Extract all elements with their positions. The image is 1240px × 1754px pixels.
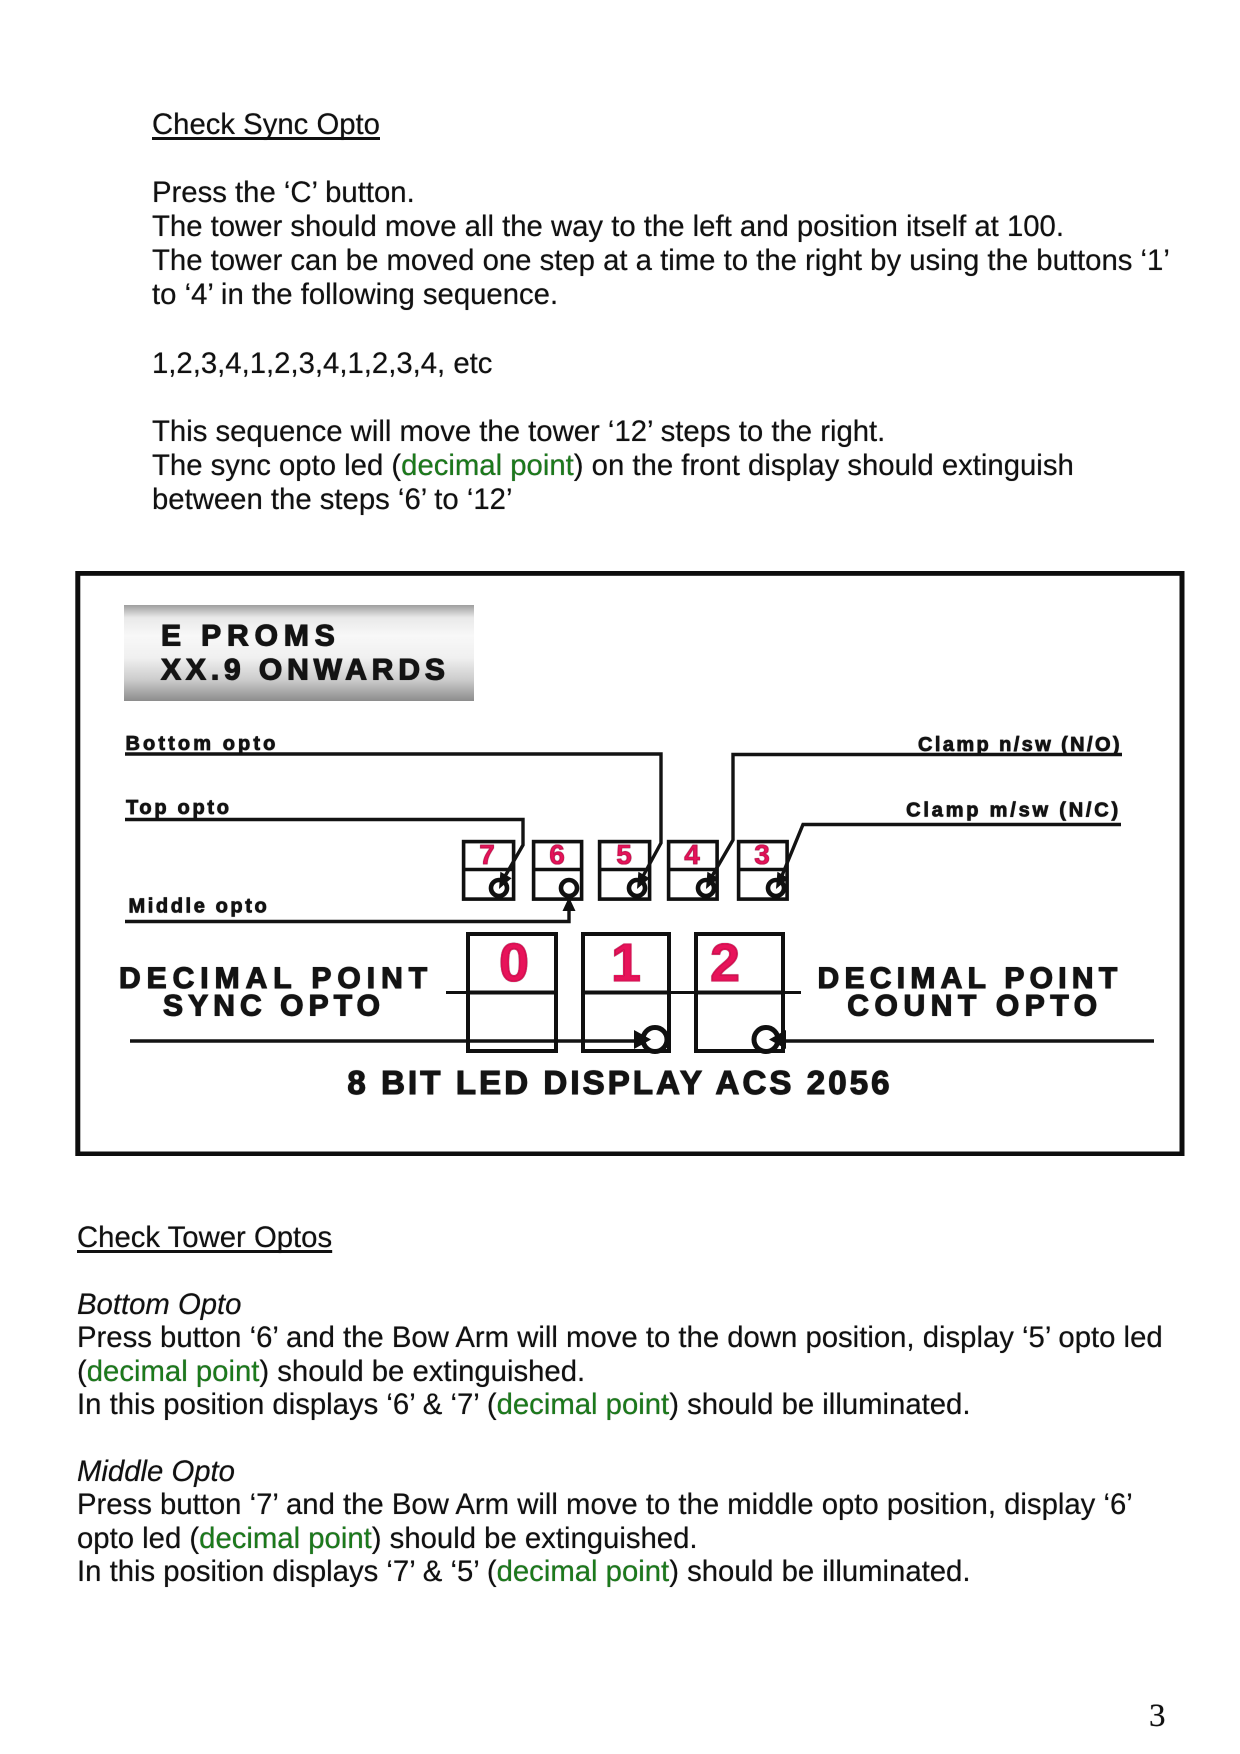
svg-text:COUNT OPTO: COUNT OPTO [847,990,1102,1023]
svg-text:7: 7 [479,839,495,870]
svg-text:2: 2 [710,933,740,993]
svg-text:1: 1 [611,933,641,993]
svg-text:Middle opto: Middle opto [129,895,270,917]
svg-text:XX.9 ONWARDS: XX.9 ONWARDS [161,654,450,687]
svg-text:E PROMS: E PROMS [161,620,341,653]
svg-text:0: 0 [499,933,529,993]
svg-text:5: 5 [616,839,632,870]
svg-text:Bottom opto: Bottom opto [126,733,279,755]
svg-text:SYNC OPTO: SYNC OPTO [163,990,385,1023]
svg-text:8 BIT LED DISPLAY ACS 2056: 8 BIT LED DISPLAY ACS 2056 [347,1064,892,1101]
svg-text:4: 4 [684,839,700,870]
svg-text:Top opto: Top opto [126,797,232,819]
svg-text:6: 6 [549,839,565,870]
svg-text:3: 3 [754,839,770,870]
svg-text:Clamp m/sw (N/C): Clamp m/sw (N/C) [906,799,1121,821]
